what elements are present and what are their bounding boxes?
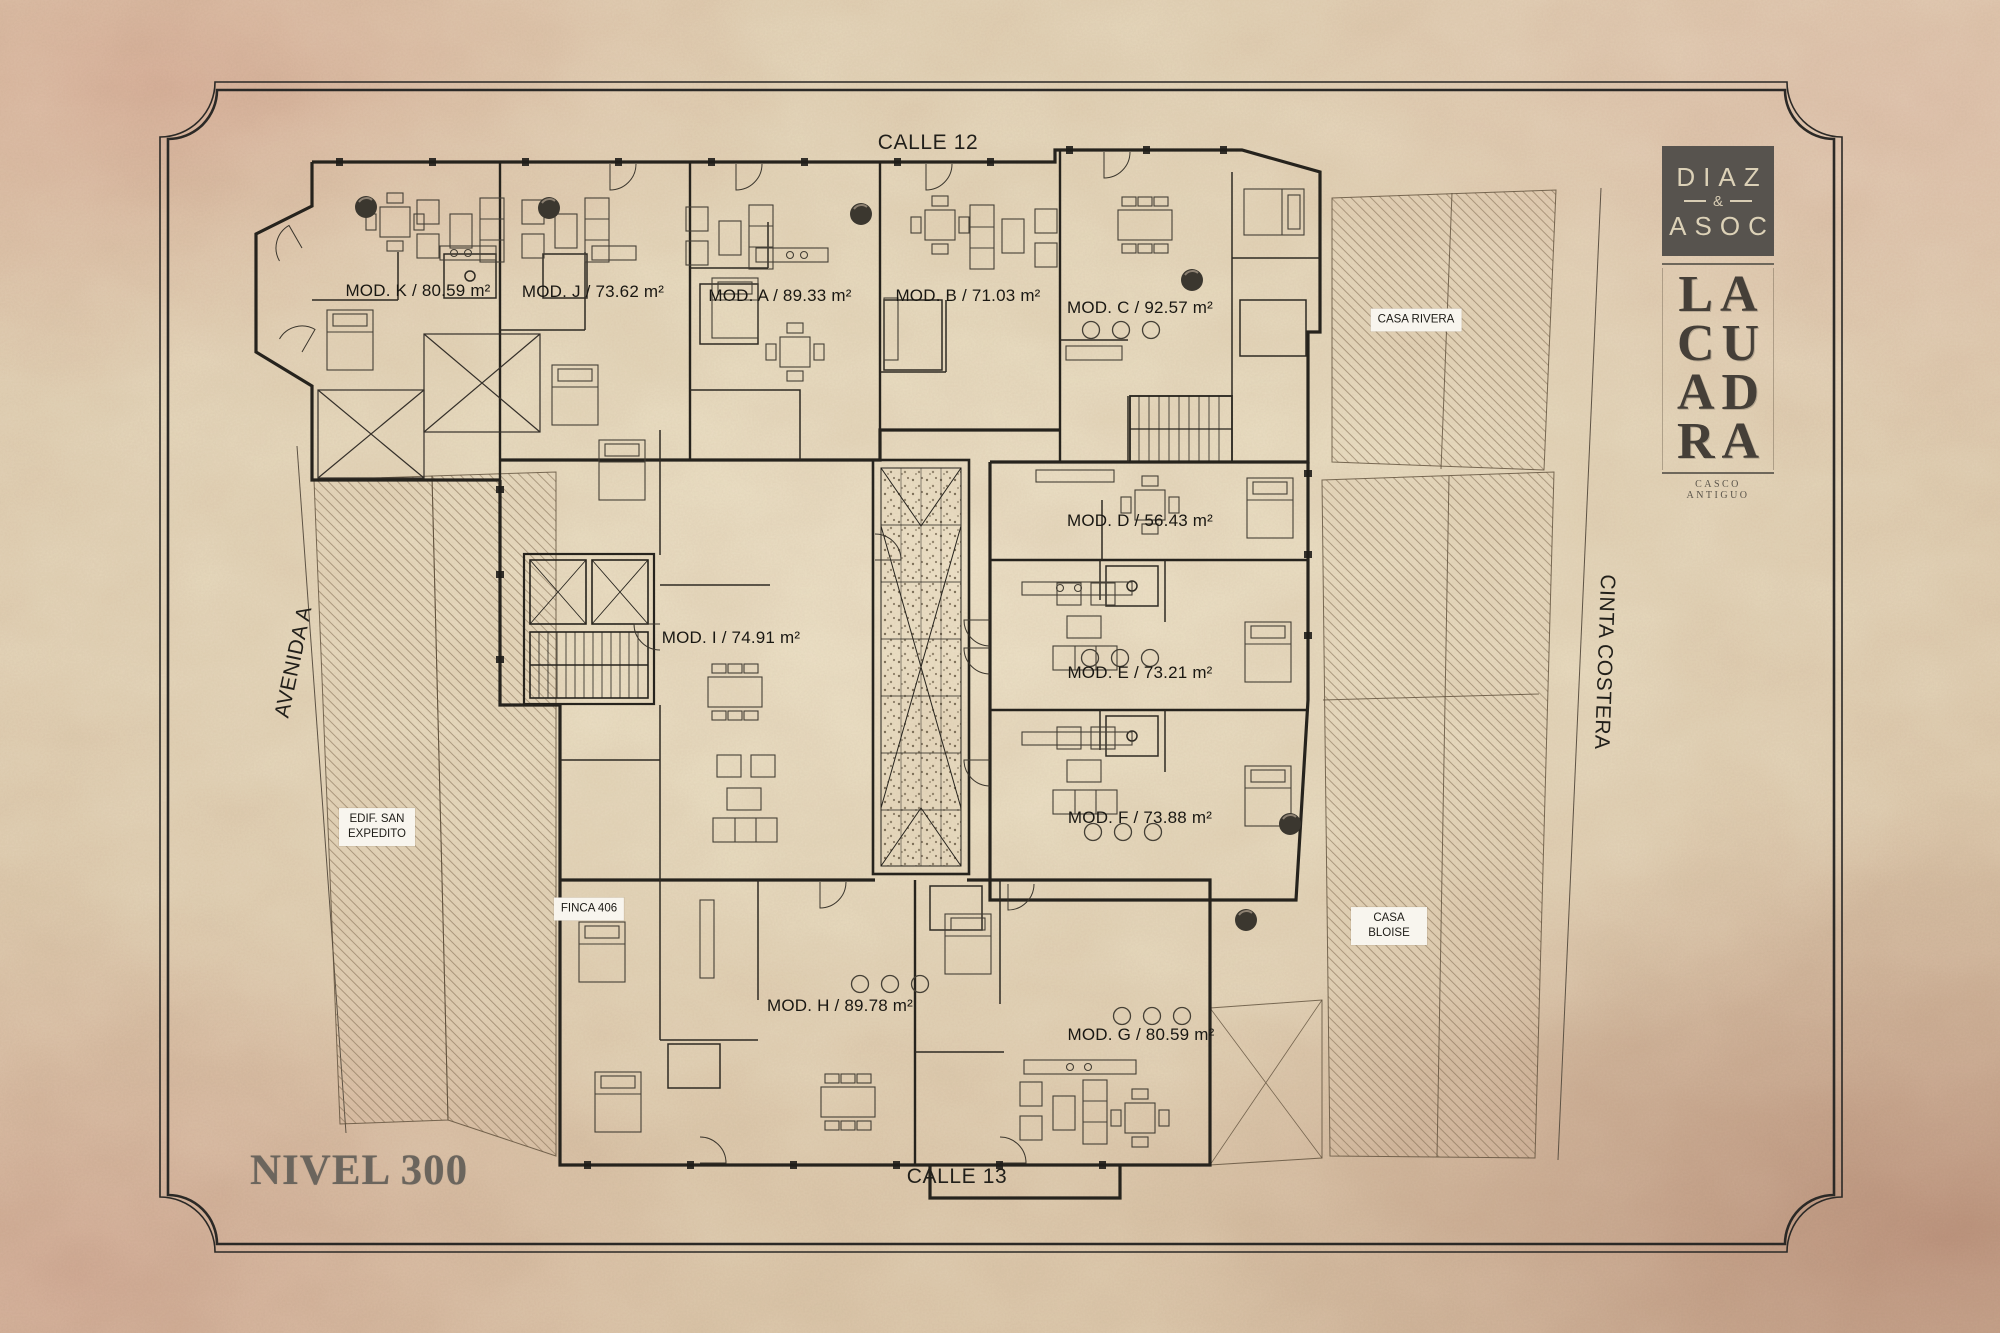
diaz-asoc-logo: DIAZ & ASOC <box>1662 146 1774 256</box>
central-courtyard <box>873 460 969 874</box>
street-label-calle-13: CALLE 13 <box>907 1165 1008 1189</box>
brand-logo: DIAZ & ASOC LA CU AD RA CASCO ANTIGUO <box>1662 146 1774 501</box>
logo-ampersand-row: & <box>1684 194 1752 209</box>
parcel-label-finca-406: FINCA 406 <box>554 898 624 921</box>
logo-ampersand: & <box>1713 194 1723 209</box>
wordmark-line-4: RA <box>1663 417 1773 466</box>
project-subtitle: CASCO ANTIGUO <box>1662 472 1774 501</box>
module-label-k: MOD. K / 80.59 m² <box>345 281 490 301</box>
parcel-label-casa-rivera: CASA RIVERA <box>1371 309 1462 332</box>
ampersand-rule-left <box>1684 200 1706 202</box>
street-label-calle-12: CALLE 12 <box>878 131 979 155</box>
module-label-i: MOD. I / 74.91 m² <box>662 628 801 648</box>
module-label-h: MOD. H / 89.78 m² <box>767 996 913 1016</box>
parcel-label-casa-bloise: CASA BLOISE <box>1351 907 1427 945</box>
logo-divider-rule <box>1662 263 1774 265</box>
module-label-a: MOD. A / 89.33 m² <box>708 286 851 306</box>
module-label-d: MOD. D / 56.43 m² <box>1067 511 1213 531</box>
module-label-b: MOD. B / 71.03 m² <box>895 286 1040 306</box>
logo-firm-bottom: ASOC <box>1661 213 1775 239</box>
module-label-j: MOD. J / 73.62 m² <box>522 282 664 302</box>
wordmark-line-1: LA <box>1663 270 1773 319</box>
wordmark-line-2: CU <box>1663 319 1773 368</box>
terraces <box>318 334 540 478</box>
ampersand-rule-right <box>1730 200 1752 202</box>
stairs-top-right <box>1130 396 1232 462</box>
module-label-e: MOD. E / 73.21 m² <box>1067 663 1212 683</box>
module-label-f: MOD. F / 73.88 m² <box>1068 808 1212 828</box>
module-label-c: MOD. C / 92.57 m² <box>1067 298 1213 318</box>
parcel-label-edif-san-expedito: EDIF. SAN EXPEDITO <box>339 808 415 846</box>
page-title: NIVEL 300 <box>250 1146 468 1195</box>
wordmark-line-3: AD <box>1663 368 1773 417</box>
logo-firm-top: DIAZ <box>1668 164 1767 190</box>
project-wordmark: LA CU AD RA <box>1662 268 1774 470</box>
module-label-g: MOD. G / 80.59 m² <box>1068 1025 1215 1045</box>
floorplan-sheet: CALLE 12 CALLE 13 AVENIDA A CINTA COSTER… <box>0 0 2000 1333</box>
